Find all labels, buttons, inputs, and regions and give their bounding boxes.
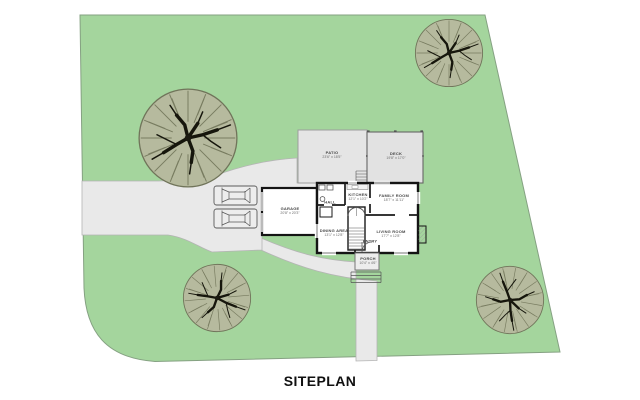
tree-northeast bbox=[415, 19, 482, 86]
car-1 bbox=[214, 186, 257, 205]
deck bbox=[366, 131, 424, 183]
car-2 bbox=[214, 209, 257, 228]
stairs bbox=[348, 207, 365, 250]
closet bbox=[320, 207, 332, 217]
patio bbox=[298, 130, 367, 183]
house bbox=[315, 181, 426, 255]
siteplan-canvas: PATIO 23'6" x 18'5" DECK 19'8" x 17'0" G… bbox=[0, 0, 640, 400]
page-title: SITEPLAN bbox=[0, 373, 640, 389]
kitchen-counter bbox=[347, 185, 368, 190]
garage bbox=[261, 188, 317, 235]
fireplace bbox=[418, 226, 426, 243]
tree-northwest bbox=[139, 89, 237, 187]
siteplan-drawing bbox=[0, 0, 640, 400]
